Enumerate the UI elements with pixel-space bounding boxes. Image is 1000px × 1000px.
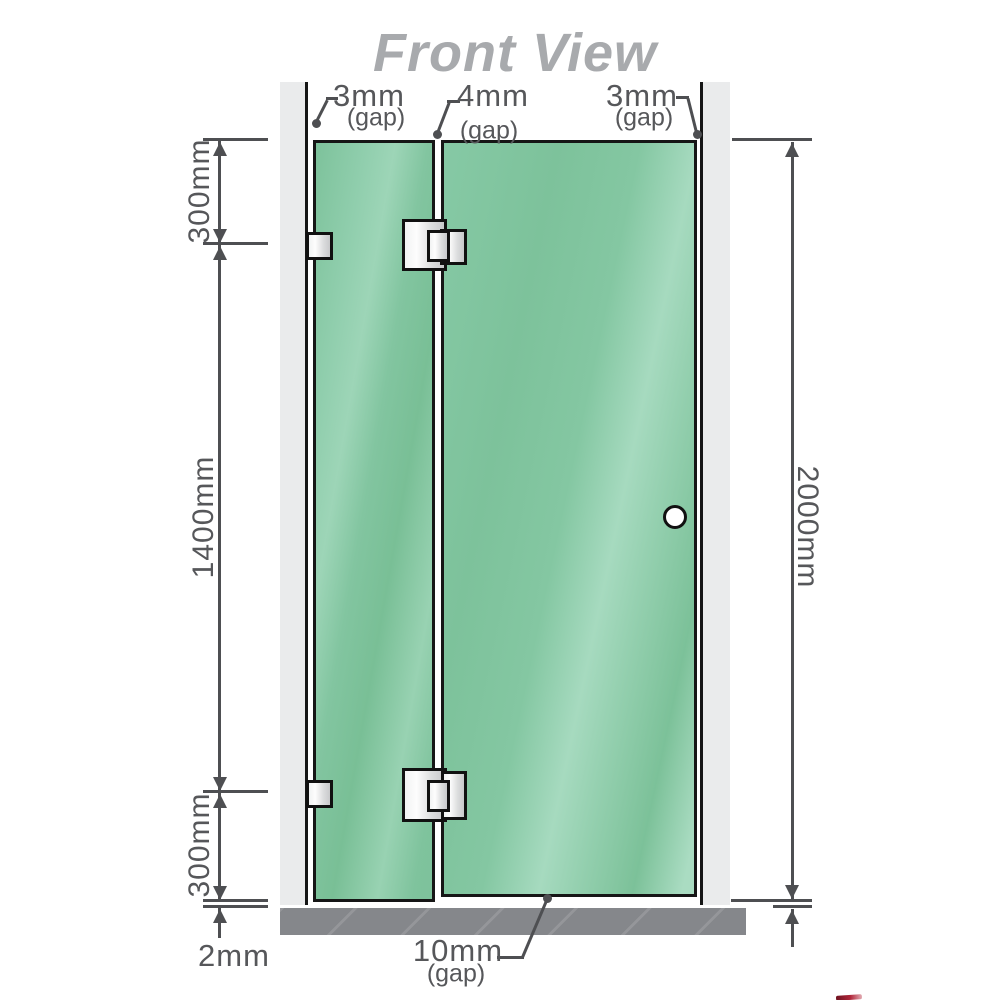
leader-line <box>315 100 329 124</box>
dim-line-left-300-bottom <box>218 793 221 900</box>
floor-base <box>280 908 746 935</box>
arrow-up-icon <box>213 909 227 923</box>
left-wall-channel <box>280 82 308 905</box>
dim-tick-right-bottom <box>731 899 812 902</box>
arrow-up-icon <box>213 246 227 260</box>
leader-dot <box>693 130 702 139</box>
arrow-down-icon <box>785 885 799 899</box>
diagram-canvas: Front View 300mm 1400mm 300mm 2mm 2000mm <box>0 0 1000 1000</box>
dim-line-left-300-top <box>218 141 221 243</box>
arrow-up-icon <box>785 910 799 924</box>
top-hinge-notch <box>427 230 450 262</box>
gap-qualifier-bottom: (gap) <box>427 960 485 989</box>
gap-qualifier-middle: (gap) <box>460 117 518 146</box>
gap-qualifier-left: (gap) <box>347 104 405 133</box>
diagram-title: Front View <box>250 22 780 84</box>
bottom-hinge-notch <box>427 780 450 812</box>
dim-label-2000mm: 2000mm <box>790 466 824 589</box>
wall-bracket-top <box>306 232 333 260</box>
arrow-up-icon <box>785 143 799 157</box>
leader-line <box>436 102 451 135</box>
dim-label-300mm-top: 300mm <box>183 138 217 243</box>
dim-label-1400mm: 1400mm <box>187 456 221 579</box>
dim-label-2mm: 2mm <box>198 938 270 974</box>
gap-qualifier-right: (gap) <box>615 104 673 133</box>
dim-tick-right-floor <box>773 905 812 908</box>
wall-bracket-bottom <box>306 780 333 808</box>
dim-tick-floor-top <box>203 905 268 908</box>
dim-tick-right-top <box>732 138 812 141</box>
arrow-down-icon <box>213 777 227 791</box>
door-handle-knob-icon <box>663 505 687 529</box>
door-glass-panel <box>441 140 697 897</box>
right-wall-channel <box>700 82 730 905</box>
dim-label-300mm-bottom: 300mm <box>183 792 217 897</box>
gap-label-4mm: 4mm <box>457 78 529 114</box>
logo-fragment <box>836 994 862 1000</box>
